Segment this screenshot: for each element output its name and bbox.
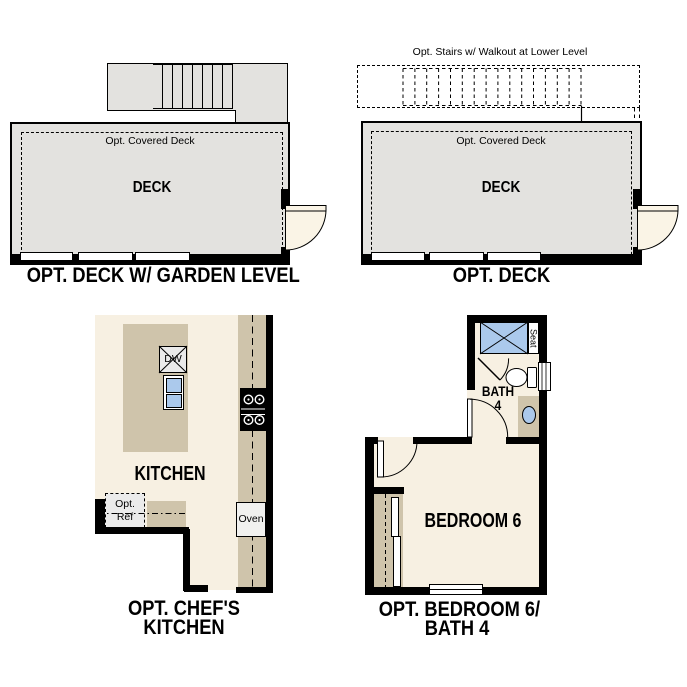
- bedroom-door-swing-icon: [381, 441, 417, 477]
- vanity-sink-fixture: [523, 407, 536, 424]
- toilet-tank: [528, 368, 537, 388]
- bedroom-bath-linework: [360, 310, 560, 600]
- shower-x: [480, 322, 528, 354]
- shower-door-leaf: [478, 358, 500, 380]
- bath-window-mullions: [542, 363, 546, 391]
- bedroom-room-label: BEDROOM 6: [409, 511, 537, 531]
- bedroom-door-leaf: [378, 441, 384, 477]
- bath-room-label-line1: BATH: [472, 384, 525, 398]
- floorplan-options-sheet: Opt. Covered Deck DECK OPT. DECK W/ GARD…: [0, 0, 687, 687]
- bath-room-label-line2: 4: [472, 398, 525, 412]
- plan-title-line2: BATH 4: [379, 618, 536, 639]
- plan-bedroom6-bath4: Seat BATH: [0, 0, 687, 687]
